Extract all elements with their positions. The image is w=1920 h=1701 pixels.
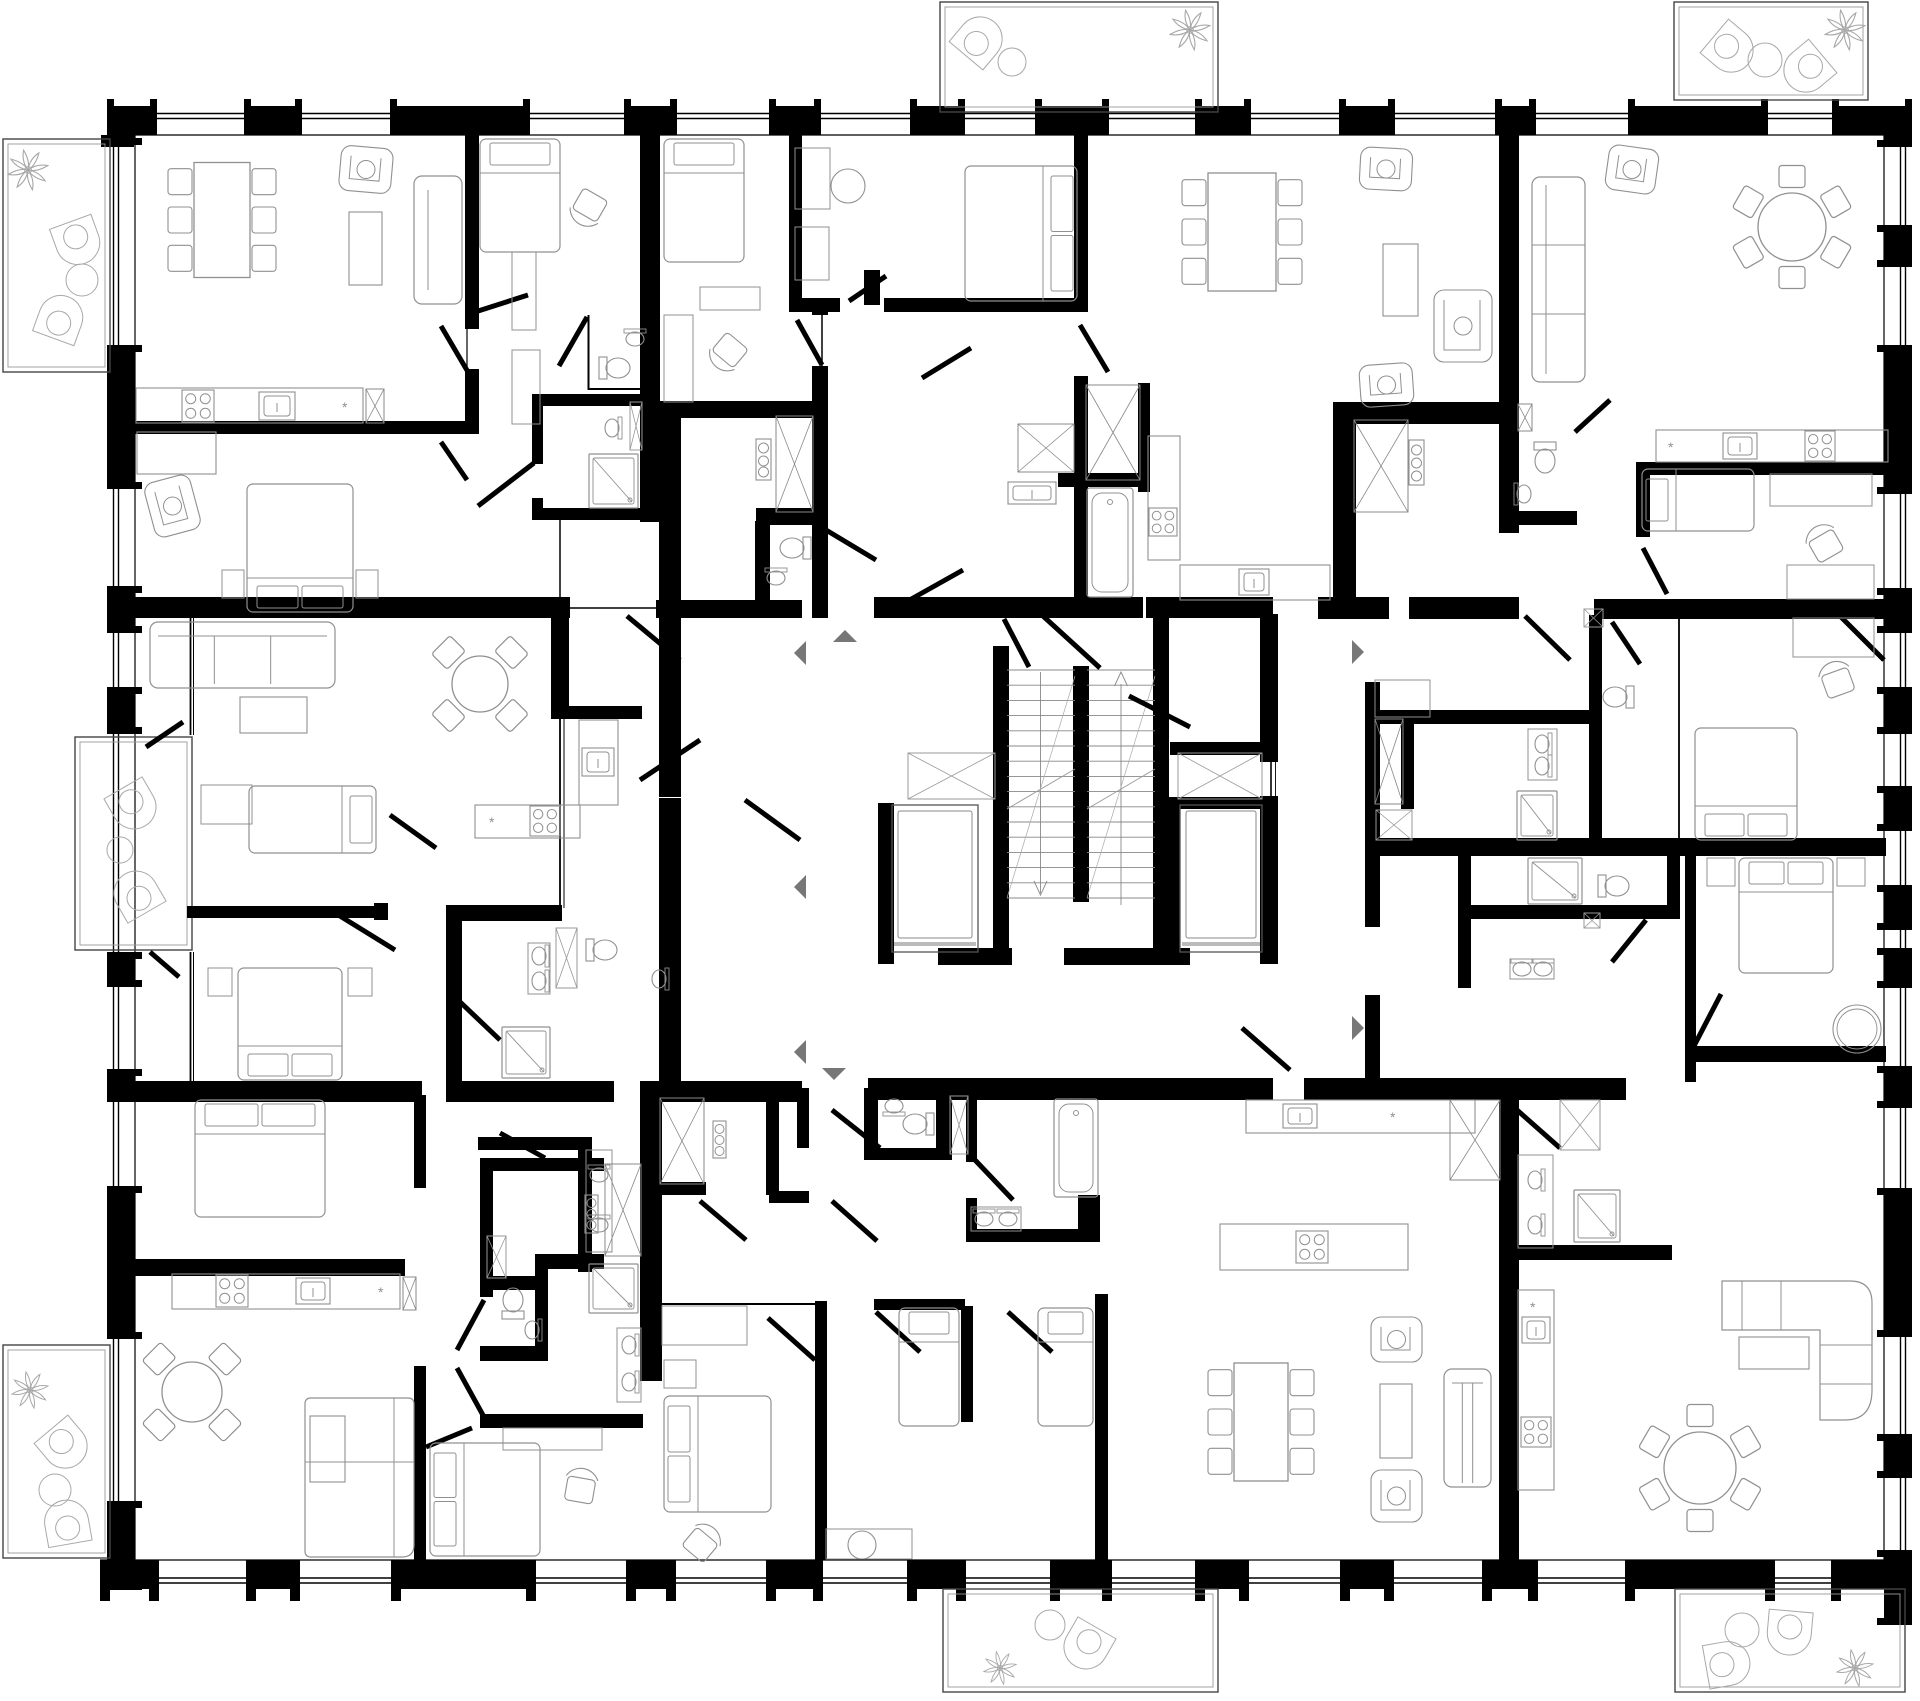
svg-text:*: * — [1668, 439, 1674, 455]
svg-text:*: * — [489, 814, 495, 830]
svg-text:*: * — [378, 1284, 384, 1300]
svg-text:*: * — [342, 399, 348, 415]
svg-text:*: * — [1390, 1109, 1396, 1125]
svg-text:*: * — [1530, 1299, 1536, 1315]
